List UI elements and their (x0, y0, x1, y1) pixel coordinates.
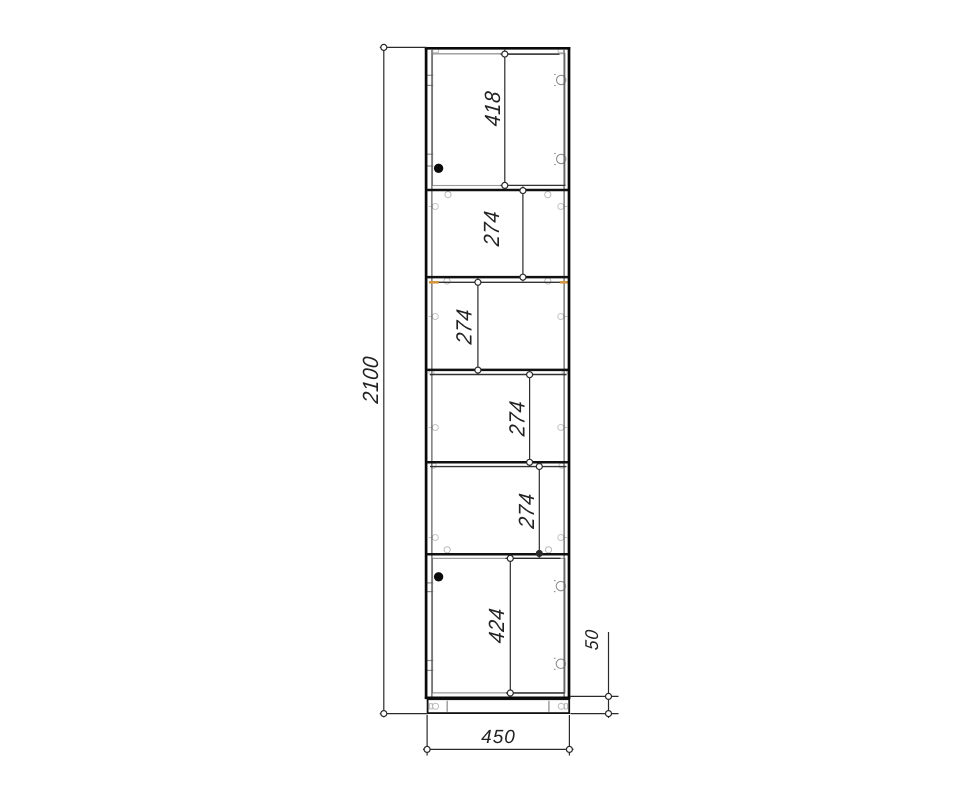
svg-text:418: 418 (480, 89, 505, 127)
svg-text:450: 450 (481, 727, 516, 748)
svg-text:274: 274 (452, 308, 477, 347)
svg-text:424: 424 (484, 607, 509, 645)
svg-text:2100: 2100 (358, 355, 383, 406)
svg-text:274: 274 (504, 399, 529, 438)
svg-text:274: 274 (514, 492, 539, 531)
svg-text:50: 50 (581, 628, 602, 651)
svg-text:274: 274 (479, 209, 504, 248)
